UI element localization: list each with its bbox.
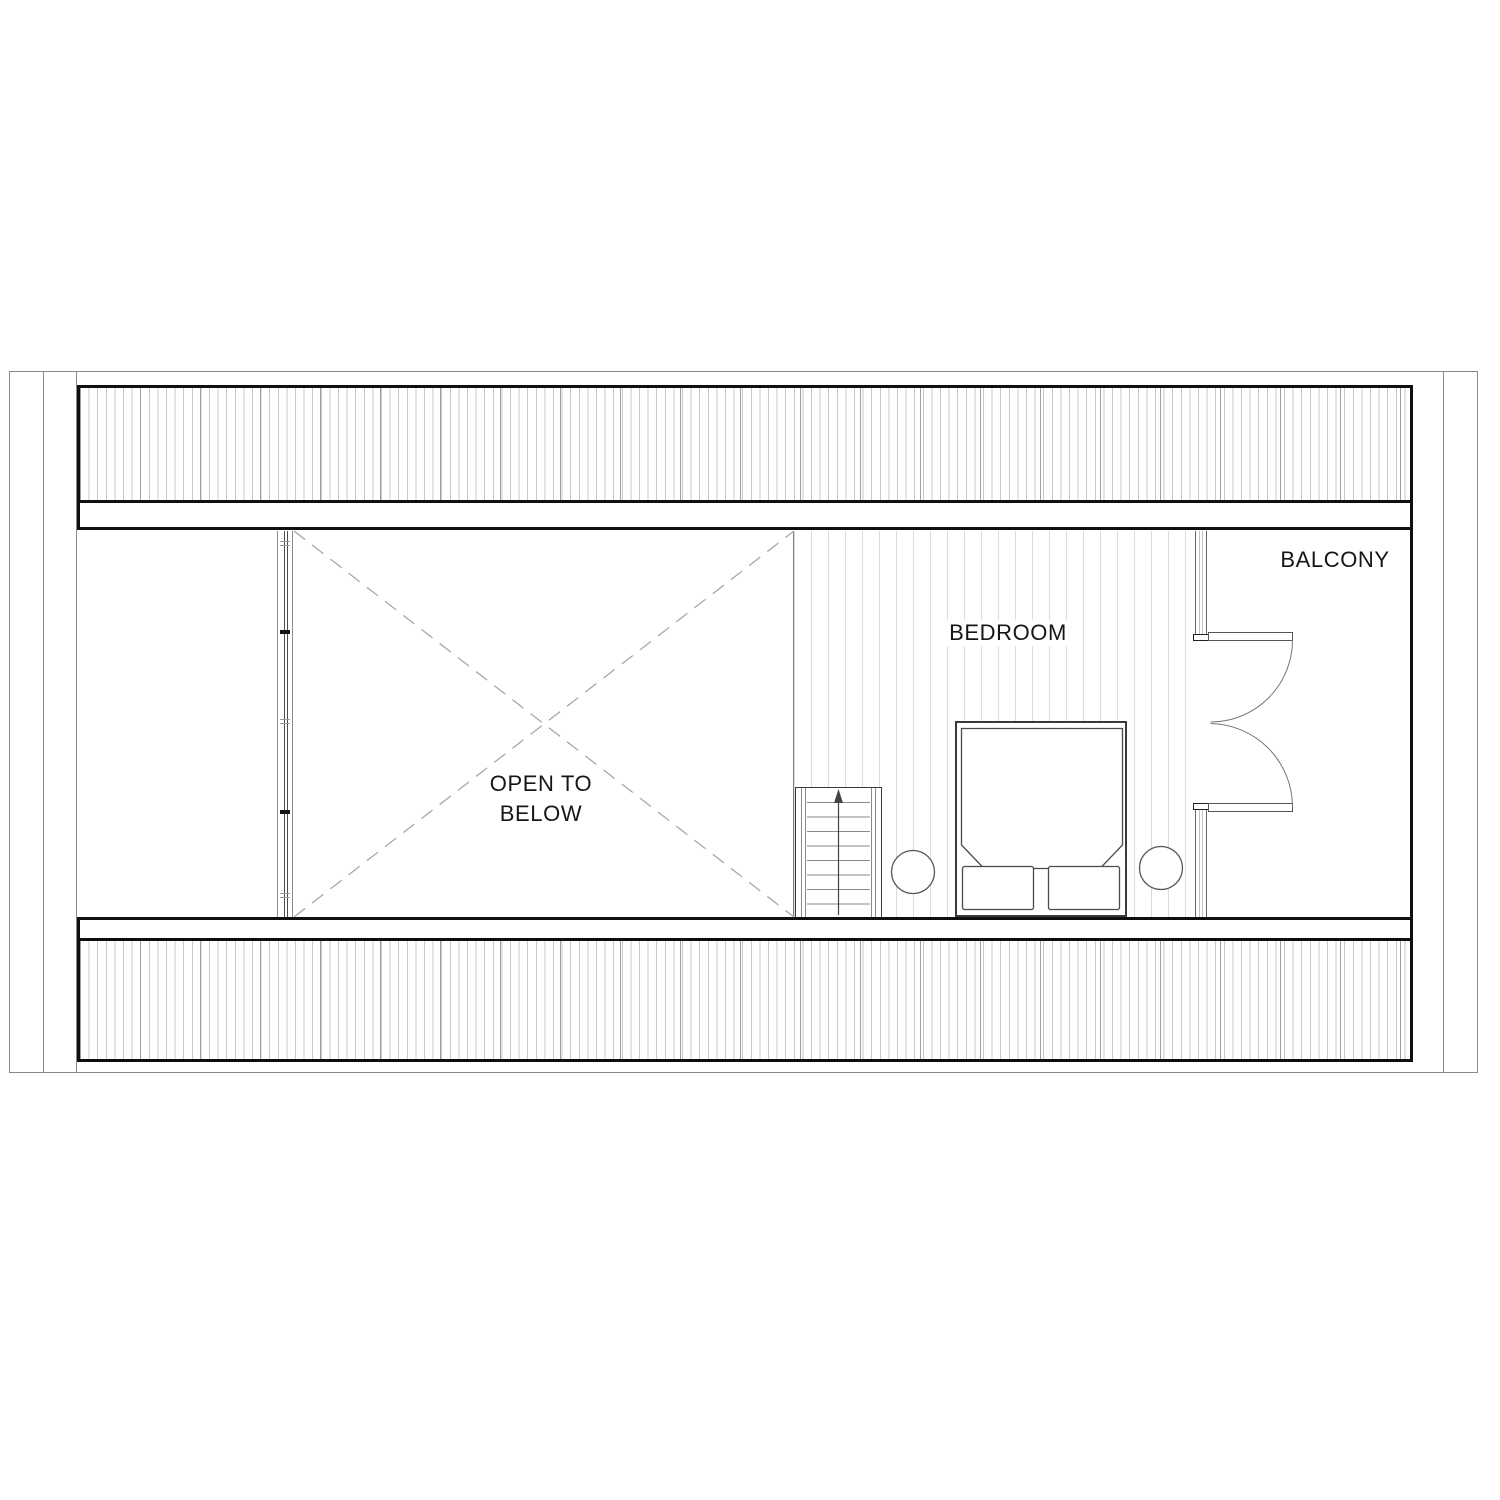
balcony-east-wall-line [1410,530,1413,918]
beam-band-top [77,503,1413,530]
french-doors [1209,633,1293,812]
door-leaf-top [1209,633,1293,641]
left-wall-mid-line [43,371,44,1073]
bedroom-east-wall-lower [1195,805,1207,917]
outer-boundary-top-line [9,371,1478,372]
roof-deck-band-bottom [77,941,1413,1062]
door-leaf-bottom [1209,804,1293,812]
bedroom-east-wall-upper [1195,531,1207,641]
staircase [795,787,882,917]
outer-boundary-bottom-line [9,1072,1478,1073]
open-to-below-label-line1: OPEN TO [490,769,592,799]
door-jamb-bottom [1193,803,1218,810]
roof-deck-band-top [77,385,1413,503]
glazing-joint [280,810,290,814]
glazing-joint [280,541,290,546]
glazing-joint [280,893,290,898]
open-to-below-label: OPEN TO BELOW [486,769,596,829]
floor-plan-canvas: BALCONY BEDROOM OPEN TO BELOW [0,0,1500,1500]
west-glazing-wall [277,531,293,917]
stair-stringer-line [871,788,872,917]
glazing-glass-line [284,531,288,917]
door-swing-arc-top [1211,640,1293,722]
stair-stringer-line [805,788,806,917]
glazing-joint [280,630,290,634]
door-swing-arc-bottom [1211,724,1293,808]
open-to-below-label-line2: BELOW [490,799,592,829]
balcony-label: BALCONY [1276,547,1393,573]
plan-vector-overlay [0,0,1500,1500]
right-wall-outer-line [1477,371,1478,1073]
left-wall-outer-line [9,371,10,1073]
stair-stringer-line [875,788,876,917]
stair-stringer-line [801,788,802,917]
glazing-joint [280,719,290,724]
bedroom-label: BEDROOM [945,620,1071,646]
door-jamb-top [1193,634,1218,641]
open-to-below-x-marks [294,531,794,917]
beam-band-bottom [77,917,1413,941]
right-wall-mid-line [1443,371,1444,1073]
stair-treads [807,802,870,915]
